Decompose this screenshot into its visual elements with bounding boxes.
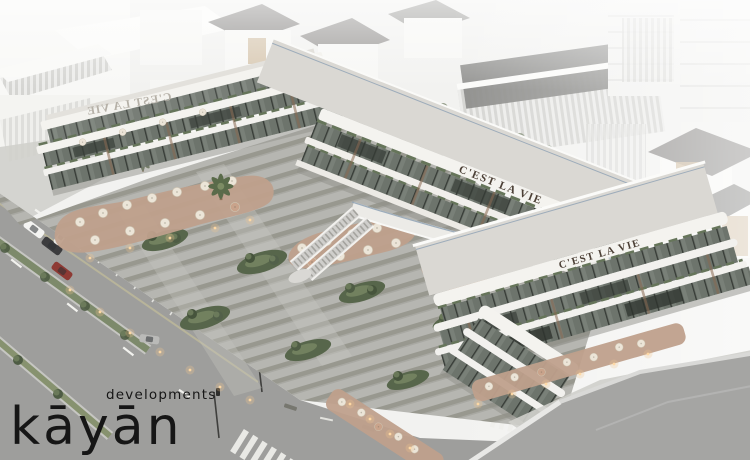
aerial-rendering: C'EST LA VIE C'EST LA VIE: [0, 0, 750, 460]
logo-wordmark: kāyān: [10, 397, 183, 457]
rendering-canvas: C'EST LA VIE C'EST LA VIE: [0, 0, 750, 460]
